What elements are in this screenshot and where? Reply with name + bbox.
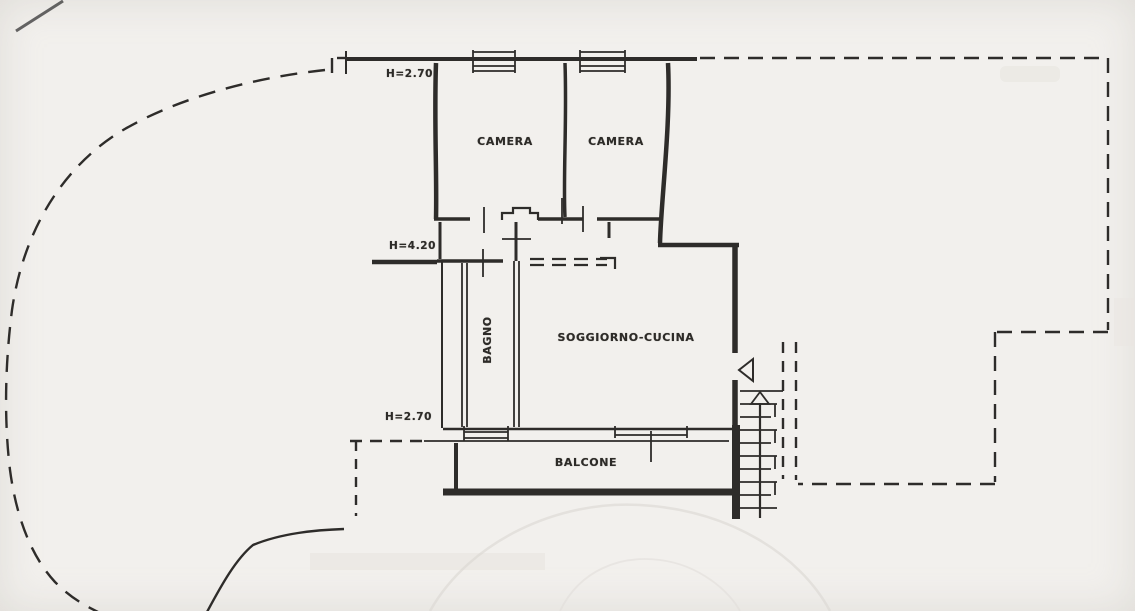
closet-bump	[502, 208, 538, 220]
scan-artifacts	[16, 1, 1134, 611]
height-label-middle: H=4.20	[389, 240, 436, 252]
scanned-floor-plan-page: H=2.70 CAMERA CAMERA H=4.20 BAGNO SOGGIO…	[0, 0, 1135, 611]
camera-left-west-wall	[435, 63, 436, 219]
window-camera-left	[473, 50, 515, 73]
stairs-arrow-head	[751, 392, 769, 404]
room-label-camera-right: CAMERA	[566, 135, 666, 148]
floor-plan-drawing	[0, 0, 1135, 611]
page-corner-line	[16, 1, 63, 31]
room-label-camera-left: CAMERA	[455, 135, 555, 148]
garden-dashed-curve	[6, 70, 325, 611]
room-label-soggiorno-cucina: SOGGIORNO-CUCINA	[555, 331, 697, 344]
height-label-bottom: H=2.70	[385, 411, 432, 423]
stairs	[740, 391, 783, 518]
balcony-walls	[424, 425, 736, 519]
windows	[464, 50, 687, 462]
height-label-top: H=2.70	[386, 68, 433, 80]
room-label-balcone: BALCONE	[540, 456, 632, 469]
door-swing-triangle	[739, 359, 753, 381]
room-label-bagno: BAGNO	[481, 309, 495, 371]
camera-right-east-wall	[660, 63, 669, 243]
window-camera-right	[580, 50, 625, 73]
